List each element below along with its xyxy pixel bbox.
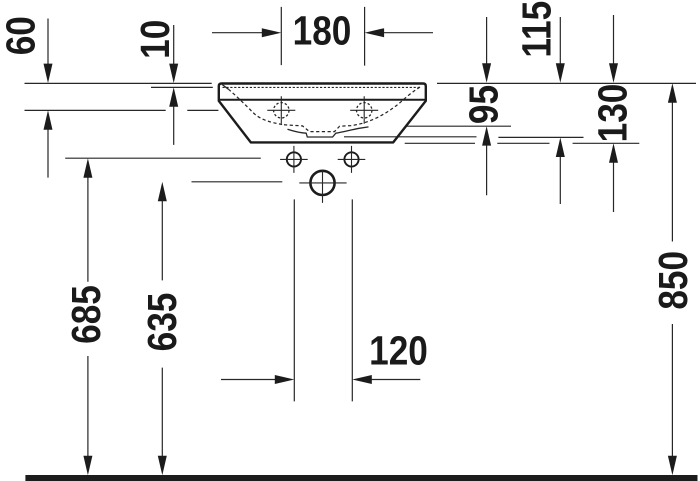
svg-text:180: 180 — [293, 9, 352, 54]
svg-text:635: 635 — [141, 293, 186, 352]
svg-text:60: 60 — [0, 16, 44, 55]
svg-text:850: 850 — [652, 251, 697, 310]
svg-text:130: 130 — [591, 84, 636, 143]
svg-text:120: 120 — [369, 329, 428, 374]
svg-text:685: 685 — [65, 285, 110, 344]
svg-text:10: 10 — [134, 20, 179, 59]
svg-text:95: 95 — [462, 85, 507, 124]
svg-text:115: 115 — [515, 1, 560, 58]
